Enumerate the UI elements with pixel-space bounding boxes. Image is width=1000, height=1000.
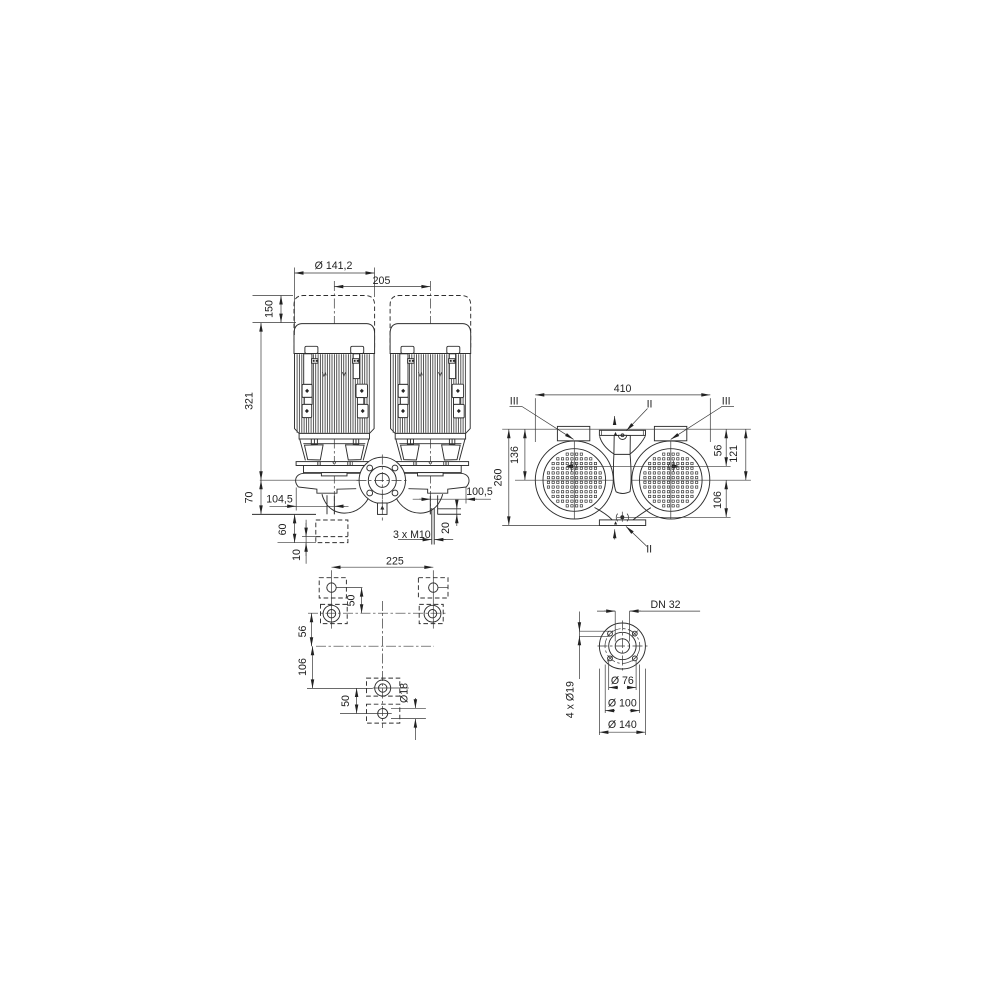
svg-text:Ø 76: Ø 76 [611,675,634,687]
svg-text:205: 205 [373,275,391,287]
svg-text:56: 56 [297,626,309,638]
svg-text:III: III [722,396,731,408]
svg-text:10: 10 [291,549,303,561]
svg-text:410: 410 [614,383,632,395]
svg-text:Ø18: Ø18 [399,683,411,703]
svg-text:150: 150 [264,300,276,318]
svg-text:50: 50 [346,595,358,607]
svg-text:Ø 100: Ø 100 [608,698,637,710]
svg-text:4 x Ø19: 4 x Ø19 [565,681,577,718]
svg-text:321: 321 [244,392,256,410]
svg-text:60: 60 [277,524,289,536]
svg-text:104,5: 104,5 [266,494,293,506]
svg-text:Ø 140: Ø 140 [608,719,637,731]
svg-text:70: 70 [244,492,256,504]
svg-text:50: 50 [340,695,352,707]
svg-text:III: III [510,396,519,408]
svg-text:100,5: 100,5 [466,486,493,498]
svg-text:56: 56 [712,445,724,457]
svg-text:121: 121 [728,445,740,463]
svg-text:II: II [646,544,652,556]
svg-text:260: 260 [493,469,505,487]
svg-text:Ø 141,2: Ø 141,2 [315,260,353,272]
svg-text:136: 136 [509,446,521,464]
svg-text:106: 106 [297,658,309,676]
svg-text:DN 32: DN 32 [651,599,681,611]
svg-text:106: 106 [712,491,724,509]
svg-text:20: 20 [440,522,452,534]
svg-text:225: 225 [386,555,404,567]
svg-text:3 x M10: 3 x M10 [393,529,431,541]
